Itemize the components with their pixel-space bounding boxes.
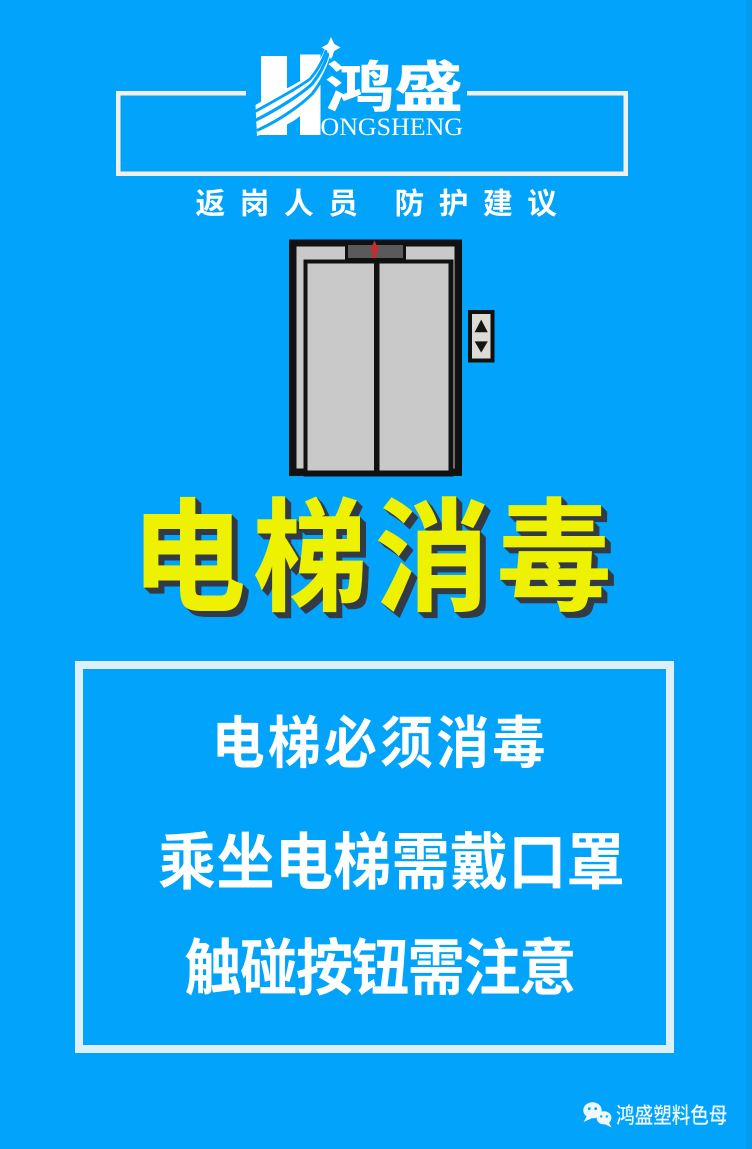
svg-text:ONGSHENG: ONGSHENG [321, 114, 464, 141]
